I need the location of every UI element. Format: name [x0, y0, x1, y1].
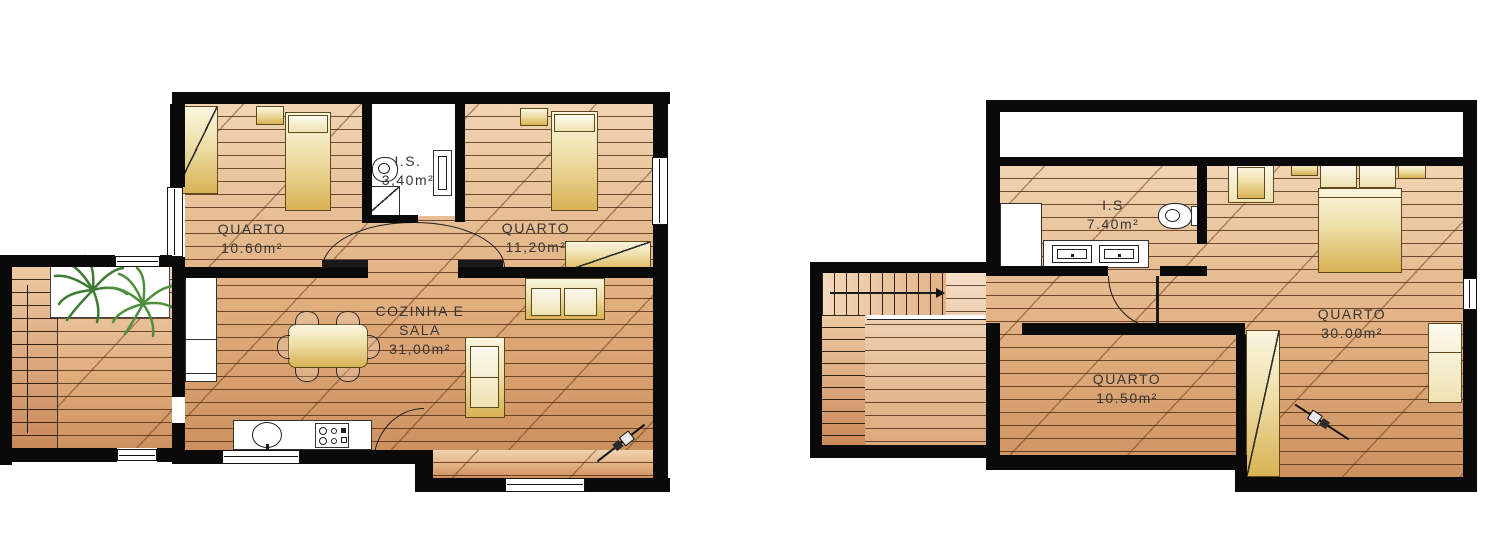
room-area: 31,00m²: [376, 340, 465, 359]
void-area: [1000, 112, 1463, 157]
chair: [295, 311, 319, 325]
window: [1463, 278, 1477, 310]
wall: [157, 448, 172, 462]
dining-table: [288, 324, 368, 368]
wall: [362, 104, 372, 222]
wardrobe: [1246, 330, 1280, 477]
wall: [986, 100, 1000, 276]
drafting-pen-symbol: [588, 415, 654, 471]
wall: [1160, 266, 1207, 276]
wall: [160, 255, 172, 267]
wall: [1463, 100, 1477, 278]
stairs-rail: [27, 285, 28, 433]
wall: [986, 455, 1245, 470]
room-area: 30.00m²: [1318, 324, 1386, 343]
window: [167, 187, 183, 257]
room-name: I.S: [1087, 196, 1140, 215]
wall: [986, 100, 1477, 112]
window: [222, 450, 300, 464]
wall: [362, 215, 418, 223]
sofa-cushion: [564, 288, 597, 316]
chair: [336, 311, 360, 325]
stair-rail: [867, 315, 986, 320]
wall: [420, 478, 505, 492]
mask: [986, 470, 1236, 492]
bed-pillow: [1359, 164, 1396, 188]
double-bed: [1318, 188, 1402, 273]
wall: [455, 104, 465, 222]
sofa-cushion: [531, 288, 561, 316]
wall: [172, 450, 222, 464]
room-name: SALA: [376, 321, 465, 340]
toilet-icon: [1158, 203, 1192, 229]
bathroom-door: [433, 150, 452, 196]
stove-icon: [315, 423, 349, 448]
kitchen-cabinet-column: [185, 276, 217, 382]
wall: [0, 255, 115, 267]
room-label-cozinha-sala: COZINHA E SALA 31,00m²: [376, 302, 465, 359]
room-area: 10.60m²: [218, 239, 286, 258]
room-label-quarto2: QUARTO 11,20m²: [502, 219, 570, 257]
door-leaf: [1156, 276, 1159, 326]
room-area: 7.40m²: [1087, 215, 1140, 234]
chair: [277, 335, 290, 359]
sink-icon: [1052, 245, 1092, 263]
room-area: 3,40m²: [382, 171, 435, 190]
bedside-table: [1398, 165, 1426, 179]
wall: [1000, 157, 1463, 166]
wall: [1236, 335, 1246, 455]
wall: [1245, 477, 1477, 492]
shower: [1000, 203, 1042, 267]
room-name: QUARTO: [1318, 305, 1386, 324]
drafting-pen-symbol: [1286, 396, 1358, 448]
stair-direction-line: [830, 292, 936, 294]
wall: [810, 445, 986, 458]
wall: [458, 267, 655, 278]
wall: [1197, 166, 1207, 244]
wall: [986, 323, 1000, 470]
wall: [653, 225, 668, 492]
window: [652, 157, 668, 225]
wall: [653, 92, 668, 157]
room-area: 11,20m²: [502, 238, 570, 257]
bedside-shelf: [256, 106, 284, 125]
bedside-shelf: [520, 108, 548, 126]
room-area: 10.50m²: [1093, 389, 1161, 408]
stairs: [822, 273, 946, 315]
sink-icon: [1099, 245, 1139, 263]
wall: [1022, 323, 1245, 335]
wall: [172, 423, 185, 450]
armchair-cushion: [470, 346, 499, 408]
wall: [172, 267, 185, 397]
room-name: QUARTO: [218, 220, 286, 239]
wall: [185, 267, 368, 278]
room-name: COZINHA E: [376, 302, 465, 321]
room-name: QUARTO: [1093, 370, 1161, 389]
window: [505, 478, 585, 492]
room-name: I.S.: [382, 152, 435, 171]
wall: [170, 257, 185, 267]
window: [117, 449, 157, 461]
room-name: QUARTO: [502, 219, 570, 238]
wall: [585, 478, 670, 492]
room-label-quarto30: QUARTO 30.00m²: [1318, 305, 1386, 343]
wall: [0, 255, 12, 465]
wall: [0, 448, 117, 462]
window: [115, 256, 160, 267]
wall: [810, 262, 986, 273]
room-label-quarto1050: QUARTO 10.50m²: [1093, 370, 1161, 408]
room-label-is: I.S 7.40m²: [1087, 196, 1140, 234]
bed-pillow: [288, 115, 328, 133]
floorplan-canvas: QUARTO 10.60m² I.S. 3,40m² QUARTO 11,20m…: [0, 0, 1507, 557]
cabinet-inner: [1237, 167, 1265, 199]
bed-pillow: [1320, 164, 1357, 188]
wall: [810, 262, 822, 458]
stair-arrow: [936, 288, 945, 298]
wall: [1000, 266, 1108, 276]
bed-pillow: [554, 114, 595, 132]
wall: [170, 104, 185, 187]
wall: [172, 92, 670, 104]
room-label-quarto1: QUARTO 10.60m²: [218, 220, 286, 258]
wall: [1463, 310, 1477, 492]
desk: [1428, 323, 1462, 403]
wall: [300, 450, 420, 464]
room-label-is: I.S. 3,40m²: [382, 152, 435, 190]
stairs: [822, 315, 865, 445]
